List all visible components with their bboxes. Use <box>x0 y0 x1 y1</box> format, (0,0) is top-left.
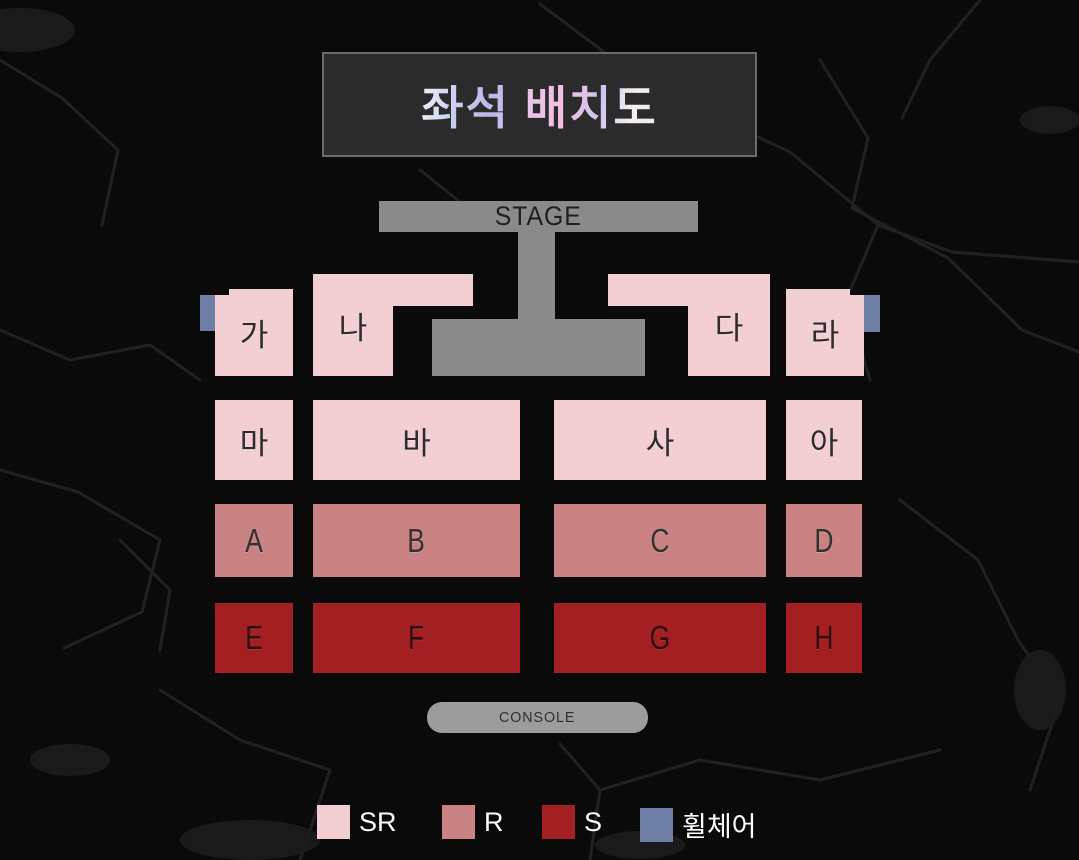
seat-section-a-kr[interactable]: 아 <box>786 400 862 480</box>
seat-section-ba[interactable]: 바 <box>313 400 520 480</box>
page-title: 좌석 배치도 <box>421 72 657 138</box>
console: CONSOLE <box>427 702 648 733</box>
seat-section-G[interactable]: G <box>554 603 766 673</box>
section-label: A <box>245 522 263 560</box>
wheelchair-color-swatch <box>640 808 673 842</box>
section-label: 사 <box>646 418 675 463</box>
section-label: 아 <box>810 418 839 463</box>
console-label: CONSOLE <box>499 709 575 726</box>
section-label: 바 <box>402 418 431 463</box>
stage-runway-platform <box>432 319 645 376</box>
seat-section-ga[interactable]: 가 <box>215 289 293 376</box>
wheelchair-seat-left[interactable] <box>200 295 215 331</box>
section-label: D <box>814 522 833 560</box>
seat-section-ra[interactable]: 라 <box>786 289 864 376</box>
legend-item-r: R <box>442 805 504 839</box>
seat-section-A[interactable]: A <box>215 504 293 577</box>
section-label: 라 <box>811 310 840 355</box>
section-label: 나 <box>313 274 393 376</box>
seat-section-B[interactable]: B <box>313 504 520 577</box>
r-color-swatch <box>442 805 475 839</box>
s-color-swatch <box>542 805 575 839</box>
seat-section-sa[interactable]: 사 <box>554 400 766 480</box>
section-label: G <box>650 619 671 657</box>
section-label: F <box>408 619 424 657</box>
legend-label: R <box>484 807 504 838</box>
section-label: C <box>650 522 669 560</box>
section-label: 다 <box>688 274 770 376</box>
stage-label: STAGE <box>495 201 582 232</box>
wheelchair-seat-right[interactable] <box>864 295 880 332</box>
legend-label: 휠체어 <box>682 805 757 844</box>
legend-item-s: S <box>542 805 602 839</box>
section-label: 가 <box>240 310 269 355</box>
seat-map: 좌석 배치도 STAGE 가 나 다 라 마 바 사 아 A B C D <box>0 0 1079 860</box>
sr-color-swatch <box>317 805 350 839</box>
seat-section-D[interactable]: D <box>786 504 862 577</box>
seat-section-F[interactable]: F <box>313 603 520 673</box>
legend-label: SR <box>359 807 397 838</box>
section-label: H <box>814 619 833 657</box>
title-banner: 좌석 배치도 <box>322 52 757 157</box>
section-label: E <box>245 619 263 657</box>
seat-section-C[interactable]: C <box>554 504 766 577</box>
seat-section-E[interactable]: E <box>215 603 293 673</box>
stage-runway-neck <box>518 232 555 320</box>
section-label: 마 <box>240 418 269 463</box>
stage: STAGE <box>379 201 698 232</box>
legend-item-sr: SR <box>317 805 397 839</box>
seat-section-ma[interactable]: 마 <box>215 400 293 480</box>
legend-label: S <box>584 807 602 838</box>
seat-section-H[interactable]: H <box>786 603 862 673</box>
section-label: B <box>408 522 426 560</box>
legend-item-wheelchair: 휠체어 <box>640 805 757 844</box>
